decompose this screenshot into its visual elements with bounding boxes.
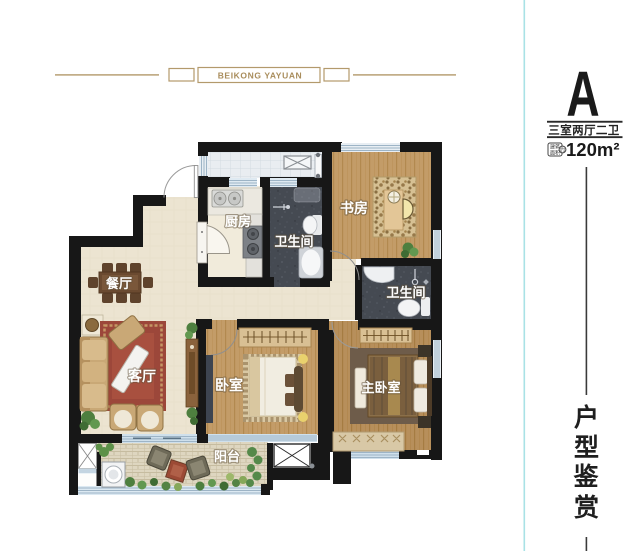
svg-text:BEIKONG YAYUAN: BEIKONG YAYUAN: [218, 71, 303, 81]
svg-text:客厅: 客厅: [127, 368, 156, 384]
svg-text:厨房: 厨房: [225, 214, 251, 229]
svg-text:户: 户: [574, 403, 599, 432]
svg-text:建筑: 建筑: [550, 144, 560, 151]
svg-text:餐厅: 餐厅: [105, 276, 132, 291]
svg-text:A: A: [566, 59, 599, 130]
svg-text:三室两厅二卫: 三室两厅二卫: [548, 123, 619, 137]
svg-text:主卧室: 主卧室: [361, 380, 400, 395]
svg-text:型: 型: [574, 434, 599, 462]
svg-text:120m²: 120m²: [566, 139, 619, 160]
svg-text:卫生间: 卫生间: [386, 285, 425, 300]
svg-text:书房: 书房: [340, 200, 368, 216]
svg-text:约: 约: [560, 147, 565, 154]
svg-text:面积: 面积: [550, 150, 560, 157]
svg-text:卧室: 卧室: [215, 377, 243, 393]
svg-text:鉴: 鉴: [572, 463, 599, 491]
svg-text:卫生间: 卫生间: [274, 234, 313, 249]
svg-text:赏: 赏: [574, 493, 599, 522]
svg-text:阳台: 阳台: [214, 449, 240, 464]
